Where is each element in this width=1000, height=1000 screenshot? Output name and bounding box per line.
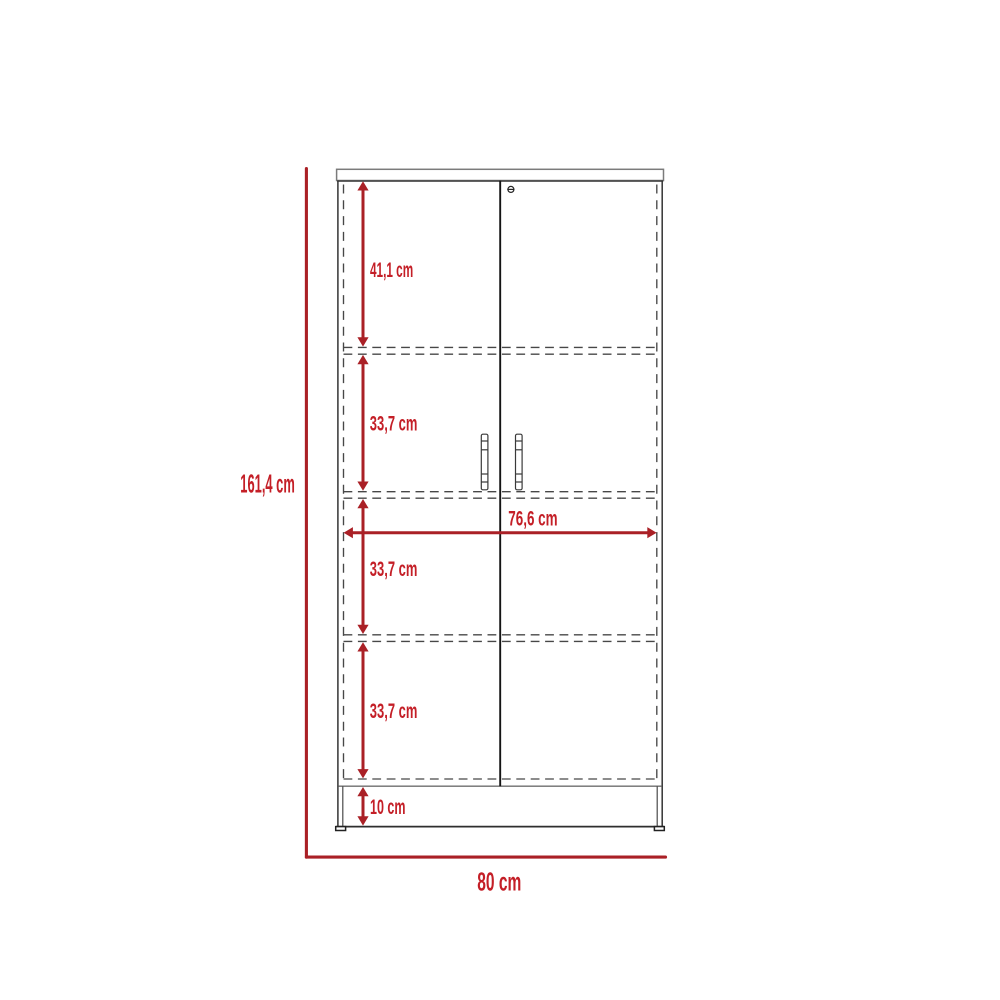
svg-text:80 cm: 80 cm [477,867,521,897]
svg-text:33,7 cm: 33,7 cm [370,699,418,723]
svg-text:41,1 cm: 41,1 cm [370,258,413,282]
svg-text:33,7 cm: 33,7 cm [370,557,418,581]
svg-text:161,4 cm: 161,4 cm [240,468,294,498]
svg-text:76,6 cm: 76,6 cm [508,507,557,531]
svg-text:10 cm: 10 cm [370,795,406,819]
svg-text:33,7 cm: 33,7 cm [370,412,418,436]
